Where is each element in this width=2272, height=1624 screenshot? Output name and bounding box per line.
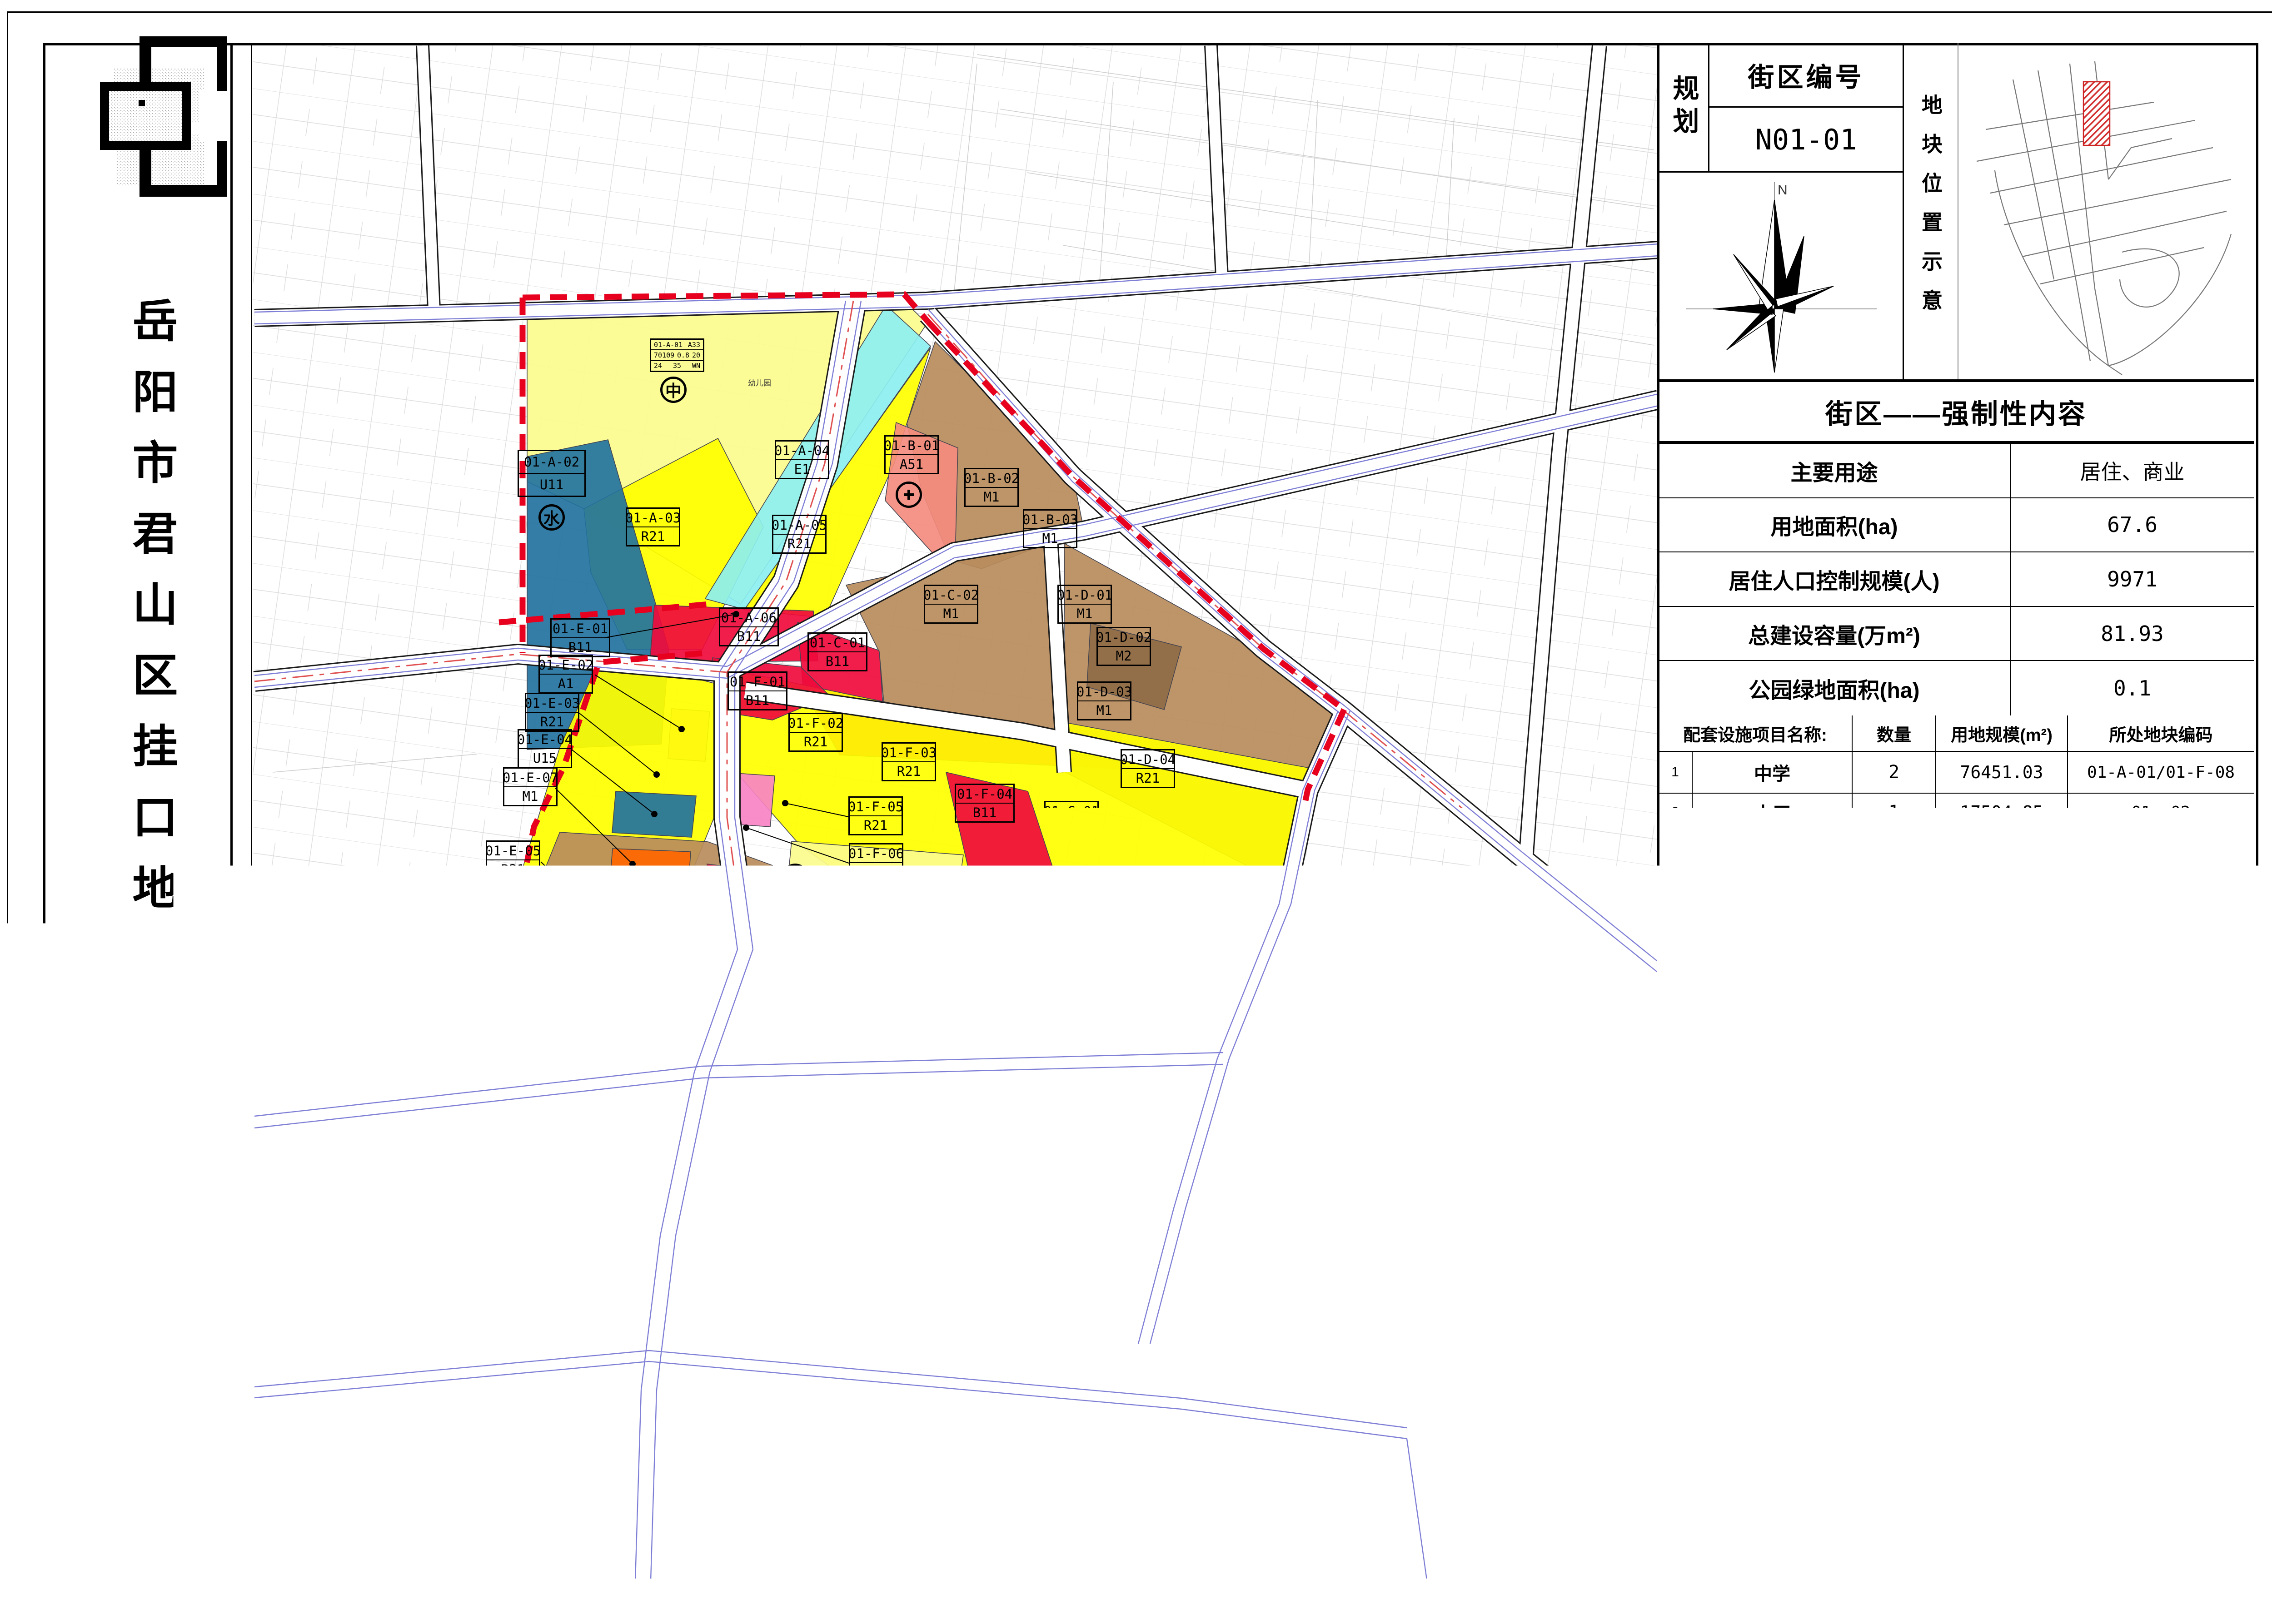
mandatory-row-value: 81.93: [2011, 607, 2254, 661]
legend-symbol-box: 信: [2122, 1437, 2160, 1453]
facility-scale: 20086.09: [1936, 832, 2068, 870]
legend-swatch: A31: [1855, 1364, 1897, 1379]
legend-item-label: 电信分局: [2171, 1437, 2226, 1457]
facility-row: 2水厂117504.8501--02: [1659, 794, 2254, 832]
legend-swatch: B3: [1855, 1437, 1897, 1451]
facility-code-line: 01--02: [2131, 803, 2190, 822]
facility-no: 3: [1659, 832, 1693, 870]
legend-symbol-box: 幼: [2122, 1401, 2160, 1417]
mandatory-row-label: 总建设容量(万m²): [1659, 607, 2011, 661]
facility-code-line: 01-A-06/01-C-01: [2087, 889, 2235, 908]
legend-label: 图例: [1659, 1295, 1709, 1529]
facility-qty: 1: [1853, 794, 1936, 831]
legend-swatch: R22: [1855, 1346, 1897, 1361]
facility-codes: 01-A-01/01-F-08: [2068, 752, 2254, 793]
legend-symbol-box: 水: [2122, 1419, 2160, 1435]
compass-cell: N: [1659, 173, 1904, 379]
facility-codes: 01-A-06/01-C-0101-E-01/01-F-0101-F-04/01…: [2068, 871, 2254, 1073]
legend-swatch: B13: [1855, 1419, 1897, 1433]
legend-swatch: M1: [1722, 1455, 1764, 1470]
legend-swatch: B1: [1855, 1401, 1897, 1415]
mandatory-row: 主要用途居住、商业: [1659, 444, 2254, 498]
facility-code-line: 01-F-09/01-H-02: [2087, 1000, 2235, 1018]
facility-header-qty: 数量: [1853, 715, 1936, 751]
legend-swatch: B2: [1722, 1437, 1764, 1451]
legend-swatch: B11: [1985, 1419, 2027, 1433]
facility-row: 3医院120086.0901-B-01: [1659, 832, 2254, 871]
legend-item-label: 娱乐康体用地: [1911, 1437, 1993, 1457]
mandatory-row-value: 67.6: [2011, 498, 2254, 552]
minimap-highlight-block: [2083, 82, 2110, 145]
legend-code: B3: [1867, 1438, 1885, 1450]
road-width: 30米: [2018, 1103, 2063, 1135]
plan-label-cell: 规划: [1659, 43, 1709, 173]
mandatory-row: 总建设容量(万m²)81.93: [1659, 607, 2254, 661]
legend-symbol-信: 信: [2134, 1438, 2148, 1452]
legend-symbol-box: [2122, 1364, 2160, 1381]
facility-row: 4商业8174388.0401-A-06/01-C-0101-E-01/01-F…: [1659, 871, 2254, 1073]
legend-swatch: B41: [1985, 1455, 2027, 1470]
legend-swatch: A6: [1722, 1401, 1764, 1415]
legend-code: A51: [1994, 1402, 2018, 1414]
legend-symbol-box: [2122, 1455, 2160, 1471]
: [2140, 1458, 2142, 1468]
facility-name: 水厂: [1693, 794, 1853, 831]
road-control-label: 主次干路控制: [1659, 1076, 1709, 1292]
legend-code: A32: [1994, 1384, 2018, 1396]
mandatory-row-value: 0.1: [2011, 661, 2254, 715]
mandatory-row-label: 用地面积(ha): [1659, 498, 2011, 552]
facility-header-scale: 用地规模(m²): [1936, 715, 2068, 751]
facility-qty: 1: [1853, 832, 1936, 870]
legend-item-label: 医院用地: [2040, 1401, 2095, 1420]
legend-item-label: 零售商业用地: [2040, 1419, 2122, 1439]
legend-code: R22: [1864, 1347, 1888, 1359]
legend-code: B1: [1867, 1402, 1885, 1414]
legend-symbol-box: 中: [2122, 1473, 2160, 1490]
facility-scale: 17504.85: [1936, 794, 2068, 831]
legend-item-label: 中小学用地: [1778, 1382, 1846, 1402]
legend-item-label: 文化活动用地: [1778, 1364, 1859, 1384]
facility-name: 商业: [1693, 871, 1853, 1073]
legend-code: B41: [1994, 1456, 2018, 1468]
mandatory-row-value: 9971: [2011, 552, 2254, 606]
mandatory-row-value: 居住、商业: [2011, 444, 2254, 497]
facility-name: 中学: [1693, 752, 1853, 793]
map-left-divider: [251, 43, 252, 1581]
legend-code: M2: [1867, 1456, 1885, 1468]
legend-code: A35: [1864, 1384, 1888, 1396]
legend-code: A6: [1734, 1402, 1752, 1414]
road-name: 君山大道: [1858, 1103, 1946, 1135]
mandatory-row-label: 居住人口控制规模(人): [1659, 552, 2011, 606]
plan-map: [253, 45, 1657, 1579]
mandatory-row-label: 公园绿地面积(ha): [1659, 661, 2011, 715]
facility-header-codes: 所处地块编码: [2068, 715, 2254, 751]
legend-swatch: R2: [1985, 1346, 2027, 1361]
legend-item-label: 邮政支局: [2171, 1346, 2226, 1366]
legend-item-label: 幼儿园: [2171, 1401, 2212, 1420]
plan-sheet: { "sheet": { "side_title": "岳阳市君山区挂口地段控制…: [0, 0, 2272, 1624]
compass-rose: N: [1659, 173, 1904, 379]
legend-symbol-box: 垃: [2122, 1382, 2160, 1399]
legend-code: B11: [1994, 1420, 2018, 1432]
legend-code: A31: [1864, 1366, 1888, 1377]
legend-code: B2: [1734, 1438, 1752, 1450]
legend-swatch: A51: [1985, 1401, 2027, 1415]
legend-swatch: A32: [1985, 1382, 2027, 1397]
legend-code: B12: [1732, 1420, 1755, 1432]
legend-swatch: B12: [1722, 1419, 1764, 1433]
legend-item-label: 行政办公用地: [2040, 1364, 2122, 1384]
footer-bar: 控制单元图则 01: [1659, 1529, 2254, 1581]
legend-code: R1: [1734, 1347, 1752, 1359]
facility-scale: 174388.04: [1936, 871, 2068, 1073]
legend-section: 图例 R1一类居住用地A22文化活动用地A33中小学用地A6社会福利用地B12批…: [1659, 1295, 2254, 1529]
institute-logo: [50, 36, 227, 291]
parcel-01-H-02: [604, 1017, 678, 1064]
bus-station-icon: [2136, 1367, 2146, 1377]
legend-item-label: 长途客运站: [2171, 1364, 2239, 1384]
legend-item-label: 一类居住用地: [1778, 1346, 1859, 1366]
facility-table: 配套设施项目名称: 数量 用地规模(m²) 所处地块编码 1中学276451.0…: [1659, 715, 2254, 1076]
legend-item-label: 科研用地: [1911, 1382, 1965, 1402]
legend-code: M1: [1734, 1456, 1752, 1468]
sheet-side-title: 岳阳市君山区挂口地段控制性详细规划: [93, 291, 184, 1508]
mandatory-table: 主要用途居住、商业用地面积(ha)67.6居住人口控制规模(人)9971总建设容…: [1659, 444, 2254, 715]
legend-code: A22: [1732, 1366, 1755, 1377]
legend-item-label: 加油加气站用地: [2040, 1455, 2136, 1475]
block-number-value: N01-01: [1709, 108, 1904, 173]
legend-item-label: 垃圾转运站: [2171, 1382, 2239, 1402]
legend-swatch: B14: [1985, 1437, 2027, 1451]
legend-item-label: 医院: [2171, 1455, 2198, 1475]
mandatory-row: 用地面积(ha)67.6: [1659, 498, 2254, 553]
legend-symbol-幼: 幼: [2134, 1402, 2148, 1415]
legend-item-label: 水厂: [2171, 1419, 2198, 1439]
legend-symbol-hospital: [2134, 1456, 2148, 1470]
legend-item-label: 高等院校用地: [1911, 1364, 1993, 1384]
facility-codes: 01--02: [2068, 794, 2254, 831]
legend-symbol-bus-station: [2134, 1366, 2148, 1379]
legend-swatch: R1: [1722, 1346, 1764, 1361]
facility-no: 2: [1659, 794, 1693, 831]
facility-code-line: 01-A-01/01-F-08: [2087, 763, 2235, 782]
compass-n-label: N: [1778, 183, 1788, 198]
legend-swatch: A22: [1722, 1364, 1764, 1379]
mandatory-title: 街区——强制性内容: [1659, 379, 2254, 444]
facility-code-line: 01-F-04/01-F-07: [2087, 963, 2235, 981]
legend-code: A1: [1997, 1366, 2015, 1377]
facility-code-line: 01-B-01: [2127, 842, 2196, 860]
legend-swatch: M2: [1855, 1455, 1897, 1470]
sheet-number: 01: [2128, 1531, 2254, 1581]
facility-scale: 76451.03: [1936, 752, 2068, 793]
facility-qty: 2: [1853, 752, 1936, 793]
legend-code: A33: [1732, 1384, 1755, 1396]
road-control-section: 主次干路控制 君山大道 30米: [1659, 1076, 2254, 1295]
legend-code: B14: [1994, 1438, 2018, 1450]
legend-item-label: 餐饮用地: [1911, 1419, 1965, 1439]
legend-item-label: 服务设施用地: [1911, 1346, 1993, 1366]
title-strip-divider: [230, 43, 233, 1581]
mandatory-row-label: 主要用途: [1659, 444, 2011, 497]
legend-item-label: 批发市场用地: [1778, 1419, 1859, 1439]
legend-item-label: 旅馆用地: [2040, 1437, 2095, 1457]
facility-no: 4: [1659, 871, 1693, 1073]
facility-codes: 01-B-01: [2068, 832, 2254, 870]
legend-swatch: A35: [1855, 1382, 1897, 1397]
legend-symbol-邮: 邮: [2134, 1347, 2148, 1361]
hospital-cross-icon: [2136, 1458, 2146, 1468]
facility-name: 医院: [1693, 832, 1853, 870]
legend-code: B13: [1864, 1420, 1888, 1432]
legend-item-label: 商务用地: [1778, 1437, 1832, 1457]
legend-item-label: 二类工业用地: [1911, 1455, 1993, 1475]
location-title: 地块位置示意: [1904, 43, 1958, 379]
legend-swatch: A1: [1985, 1364, 2027, 1379]
facility-qty: 8: [1853, 871, 1936, 1073]
legend-code: R2: [1997, 1347, 2015, 1359]
legend-swatch: A33: [1722, 1382, 1764, 1397]
footer-title: 控制单元图则: [1659, 1531, 2128, 1581]
facility-header-name: 配套设施项目名称:: [1659, 715, 1853, 751]
facility-code-line: 01-E-01/01-F-01: [2087, 926, 2235, 944]
legend-symbol-水: 水: [2134, 1420, 2148, 1434]
facility-row: 1中学276451.0301-A-01/01-F-08: [1659, 752, 2254, 794]
mandatory-row: 居住人口控制规模(人)9971: [1659, 552, 2254, 607]
legend-symbol-中: 中: [2134, 1475, 2148, 1488]
facility-code-line: 01-H-05/01-I-01: [2087, 1037, 2235, 1055]
legend-item-label: 二类居住用地: [2040, 1346, 2122, 1366]
legend-item-label: 一类工业用地: [1778, 1455, 1859, 1475]
facility-no: 1: [1659, 752, 1693, 793]
legend-symbol-box: 邮: [2122, 1346, 2160, 1362]
location-minimap: [1958, 43, 2254, 379]
legend-item-label: 商业用地: [1911, 1401, 1965, 1420]
legend-symbol-垃: 垃: [2134, 1384, 2148, 1397]
info-panel: 规划 街区编号 N01-01 N 地块: [1659, 43, 2254, 1581]
mandatory-row: 公园绿地面积(ha)0.1: [1659, 661, 2254, 715]
legend-item-label: 社会福利用地: [1778, 1401, 1859, 1420]
block-number-label: 街区编号: [1709, 43, 1904, 108]
